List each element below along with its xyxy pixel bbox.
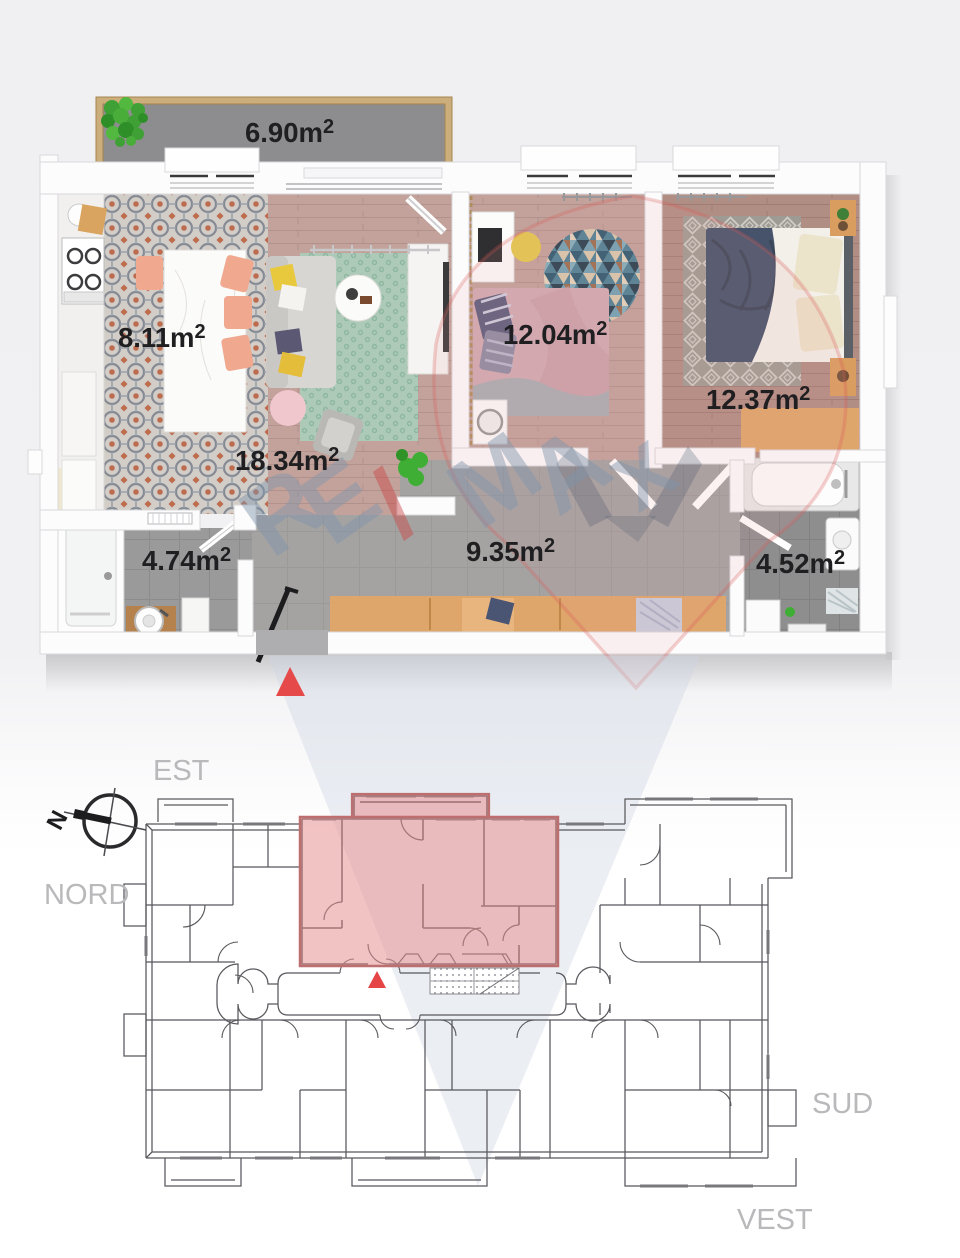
svg-text:VEST: VEST: [737, 1204, 813, 1236]
svg-text:9.35m2: 9.35m2: [466, 535, 555, 567]
svg-text:EST: EST: [153, 755, 210, 787]
svg-text:SUD: SUD: [812, 1088, 873, 1120]
svg-text:12.04m2: 12.04m2: [503, 318, 607, 350]
svg-text:4.74m2: 4.74m2: [142, 544, 231, 576]
svg-text:NORD: NORD: [44, 879, 129, 911]
svg-text:18.34m2: 18.34m2: [235, 444, 339, 476]
svg-text:4.52m2: 4.52m2: [756, 547, 845, 579]
svg-text:6.90m2: 6.90m2: [245, 116, 334, 148]
svg-text:8.11m2: 8.11m2: [118, 321, 206, 353]
svg-text:12.37m2: 12.37m2: [706, 383, 810, 415]
